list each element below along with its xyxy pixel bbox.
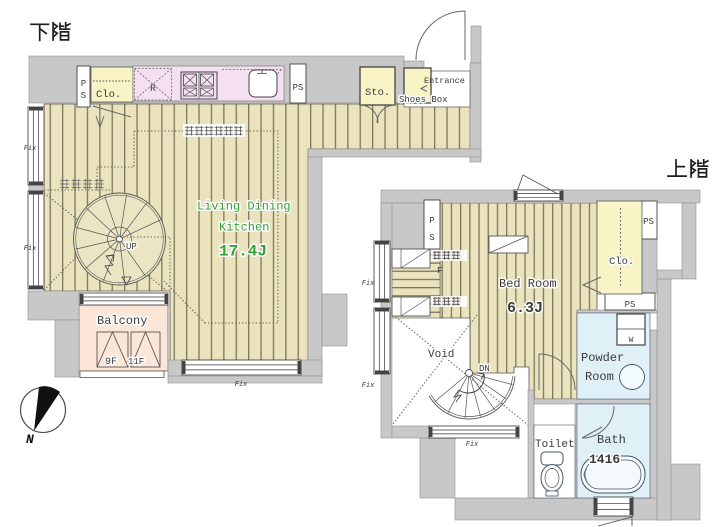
svg-text:Clo.: Clo. xyxy=(96,89,121,101)
svg-text:S: S xyxy=(429,233,434,243)
svg-text:P: P xyxy=(429,216,434,226)
svg-text:PS: PS xyxy=(293,83,304,93)
svg-text:Powder: Powder xyxy=(581,351,624,365)
svg-text:Clo.: Clo. xyxy=(609,256,634,268)
svg-text:Fix: Fix xyxy=(235,381,248,389)
svg-text:Fix: Fix xyxy=(362,280,375,288)
svg-text:Toilet: Toilet xyxy=(535,439,575,451)
svg-text:Bed Room: Bed Room xyxy=(499,277,557,291)
svg-text:W: W xyxy=(629,336,634,345)
svg-text:UP: UP xyxy=(126,242,137,252)
svg-text:Fix: Fix xyxy=(24,245,37,253)
svg-text:Entrance: Entrance xyxy=(424,76,465,86)
svg-text:Bath: Bath xyxy=(597,433,626,447)
svg-text:Kitchen: Kitchen xyxy=(219,221,269,235)
svg-text:Living Dining: Living Dining xyxy=(197,200,291,214)
svg-text:Fix: Fix xyxy=(362,382,375,390)
svg-text:PS: PS xyxy=(625,300,636,310)
svg-text:6.3J: 6.3J xyxy=(507,300,543,317)
svg-text:DN: DN xyxy=(479,364,490,374)
svg-text:Fix: Fix xyxy=(24,145,37,153)
svg-text:17.4J: 17.4J xyxy=(219,243,267,261)
svg-text:S: S xyxy=(81,91,86,101)
svg-text:P: P xyxy=(81,79,86,89)
svg-text:N: N xyxy=(26,432,34,447)
svg-text:Void: Void xyxy=(428,349,454,361)
svg-text:Shoes Box: Shoes Box xyxy=(399,95,448,105)
svg-text:Room: Room xyxy=(585,370,614,384)
svg-text:Sto.: Sto. xyxy=(365,87,390,99)
svg-text:Balcony: Balcony xyxy=(97,314,147,328)
svg-text:F: F xyxy=(437,266,442,276)
svg-text:1416: 1416 xyxy=(589,452,620,467)
svg-text:11F: 11F xyxy=(128,357,144,367)
svg-text:Fix: Fix xyxy=(466,441,479,449)
svg-text:9F: 9F xyxy=(105,357,117,368)
svg-text:PS: PS xyxy=(643,217,654,227)
svg-text:R: R xyxy=(150,84,156,95)
